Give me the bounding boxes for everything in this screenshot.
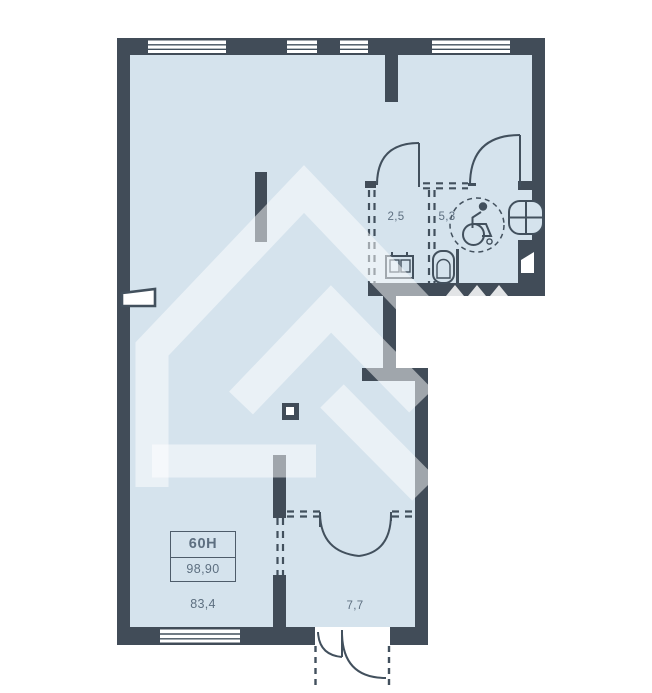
unit-number: 60Н <box>171 532 235 558</box>
entrance-opening <box>315 627 390 645</box>
area-label-entry: 7,7 <box>340 600 370 612</box>
utility-shaft <box>518 240 545 292</box>
area-label-wc-large: 5,3 <box>430 211 464 223</box>
area-label-main: 83,4 <box>185 597 221 611</box>
area-label-wc-small: 2,5 <box>380 211 412 223</box>
floor-plan: 2,5 5,3 83,4 7,7 60Н 98,90 <box>0 0 652 693</box>
plan-svg <box>0 0 652 693</box>
column <box>282 403 299 420</box>
radiator-niche <box>122 289 155 306</box>
unit-info-box: 60Н 98,90 <box>170 531 236 582</box>
unit-total-area: 98,90 <box>171 558 235 581</box>
sink-icon <box>509 201 543 234</box>
